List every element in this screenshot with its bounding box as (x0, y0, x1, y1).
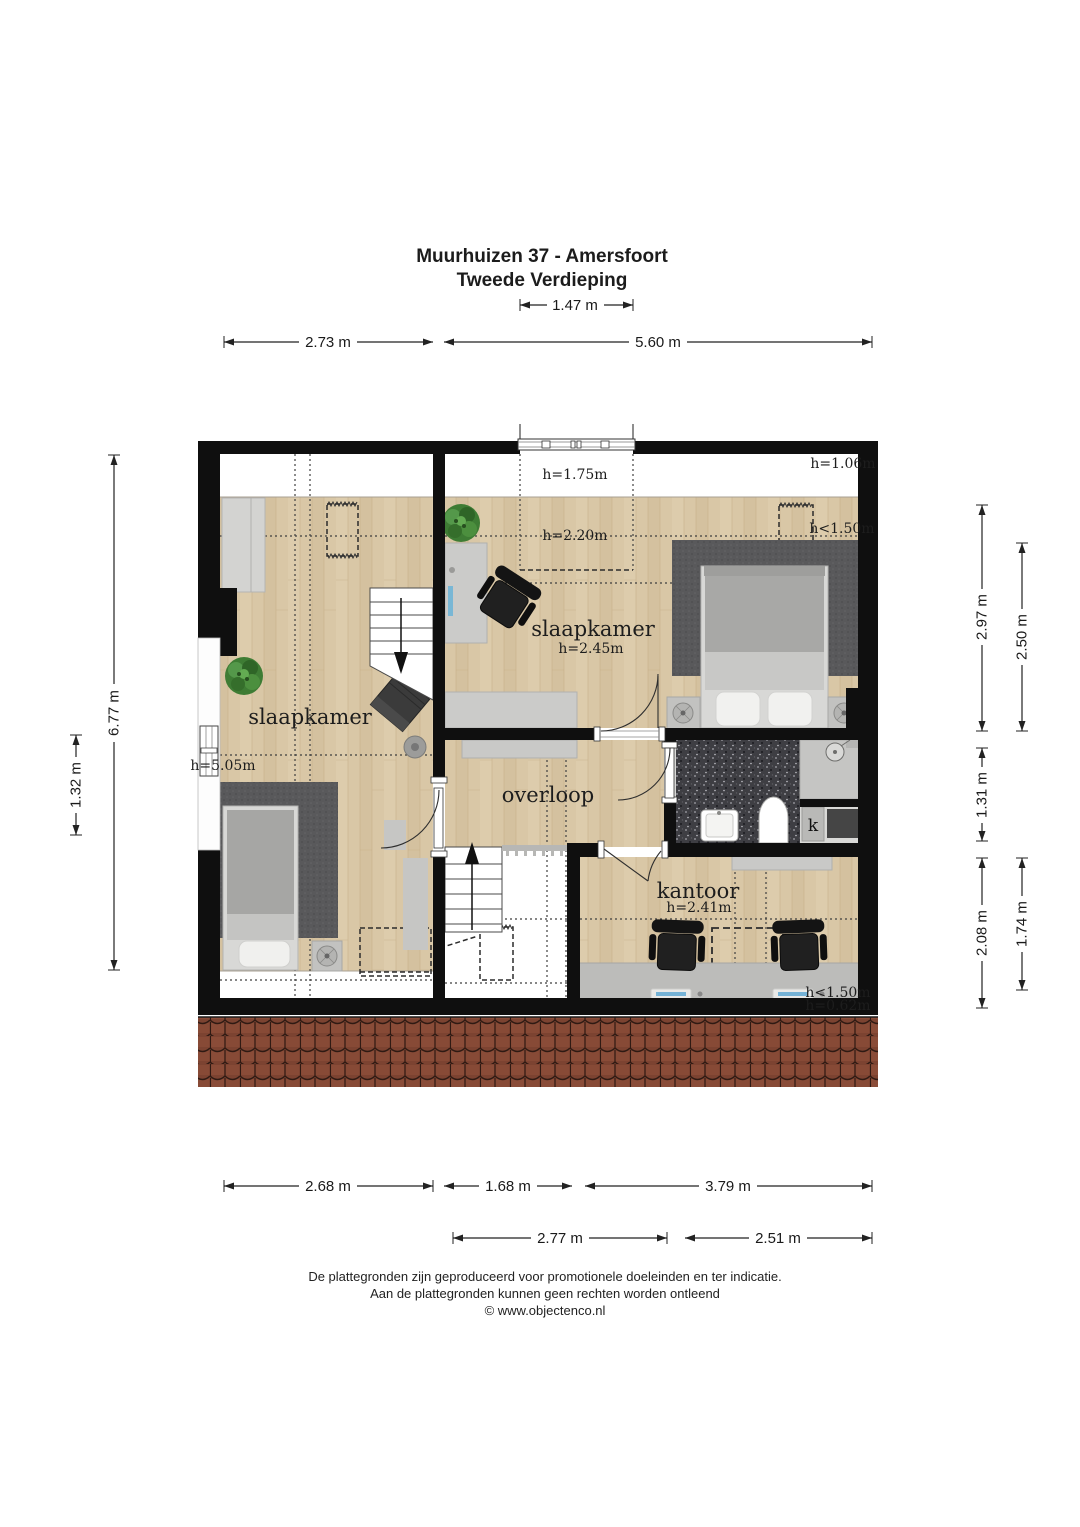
sideboard-icon (462, 740, 577, 758)
dimension-right-bedroom: 2.97 m (974, 505, 991, 731)
dim-label: 2.08 m (974, 910, 991, 956)
room-label-landing: overloop (502, 783, 594, 807)
dim-label: 5.60 m (635, 334, 681, 351)
dimension-right-office-inner: 1.74 m (1014, 858, 1031, 990)
height-label-knee-wall: h=0.62m (805, 998, 870, 1014)
dim-label: 2.50 m (1014, 614, 1031, 660)
dimension-left-total: 6.77 m (106, 455, 123, 970)
height-label-eaves: h=1.06m (810, 456, 875, 472)
dim-label: 1.68 m (485, 1178, 531, 1195)
floor-plan-canvas: Muurhuizen 37 - Amersfoort Tweede Verdie… (0, 0, 1080, 1527)
dimension-right-bathroom: 1.31 m (974, 748, 991, 841)
roof-tiles (198, 1017, 878, 1087)
single-bed-icon (223, 806, 298, 970)
left-window (198, 638, 220, 850)
closet-label: k (808, 816, 819, 836)
height-label: h=2.41m (666, 900, 731, 916)
title-line1: Muurhuizen 37 - Amersfoort (416, 246, 668, 267)
height-label-dormer: h=1.75m (542, 467, 607, 483)
dim-label: 2.77 m (537, 1230, 583, 1247)
double-bed-icon (701, 566, 828, 728)
shelf-icon (384, 820, 406, 850)
title-line2: Tweede Verdieping (457, 270, 628, 291)
page-title: Muurhuizen 37 - Amersfoort Tweede Verdie… (416, 246, 668, 291)
footer-line3: © www.objectenco.nl (485, 1303, 606, 1318)
room-label-bedroom-left: slaapkamer (248, 705, 373, 729)
height-label-low-bedroom: h<1.50m (809, 521, 874, 537)
footer-disclaimer: De plattegronden zijn geproduceerd voor … (308, 1269, 781, 1318)
dimension-top-right: 5.60 m (444, 334, 872, 351)
dimension-bottom-bath: 2.51 m (685, 1230, 872, 1247)
stairs-up-icon (445, 842, 502, 932)
dim-label: 6.77 m (106, 690, 123, 736)
height-label: h=2.45m (558, 641, 623, 657)
stool-icon (404, 736, 426, 758)
dimension-bottom-office: 3.79 m (585, 1178, 872, 1195)
footer-line1: De plattegronden zijn geproduceerd voor … (308, 1269, 781, 1284)
shower-icon (800, 740, 860, 799)
dimension-bottom-left: 2.68 m (224, 1178, 433, 1195)
floor-plan: k (190, 424, 878, 1015)
dim-label: 1.31 m (974, 772, 991, 818)
dimension-right-bedroom-inner: 2.50 m (1014, 543, 1031, 731)
plant-icon (442, 504, 480, 542)
dimension-right-office: 2.08 m (974, 858, 991, 1008)
dim-label: 1.32 m (68, 762, 85, 808)
dim-label: 2.51 m (755, 1230, 801, 1247)
room-label-bedroom-right: slaapkamer (531, 617, 656, 641)
dim-label: 2.73 m (305, 334, 351, 351)
footer-line2: Aan de plattegronden kunnen geen rechten… (370, 1286, 720, 1301)
sink-icon (701, 810, 738, 841)
toilet-icon (759, 797, 788, 843)
cabinet-icon (403, 858, 428, 950)
dresser-icon (445, 692, 577, 728)
dimension-bottom-stairs: 1.68 m (444, 1178, 572, 1195)
dormer-window (518, 424, 635, 450)
dimension-left-window: 1.32 m (68, 735, 85, 835)
nightstand-icon (667, 697, 700, 729)
closet-k: k (802, 807, 824, 841)
dim-label: 2.68 m (305, 1178, 351, 1195)
dimension-top-dormer: 1.47 m (520, 297, 633, 314)
wardrobe-icon (222, 498, 265, 592)
dimension-bottom-landing: 2.77 m (453, 1230, 667, 1247)
nightstand-icon (312, 941, 342, 971)
dim-label: 1.47 m (552, 297, 598, 314)
floor-plan-page: Muurhuizen 37 - Amersfoort Tweede Verdie… (0, 0, 1080, 1527)
dim-label: 3.79 m (705, 1178, 751, 1195)
dim-label: 1.74 m (1014, 901, 1031, 947)
height-label-slope: h=2.20m (542, 528, 607, 544)
dimension-top-left: 2.73 m (224, 334, 433, 351)
height-label: h=5.05m (190, 758, 255, 774)
dim-label: 2.97 m (974, 594, 991, 640)
plant-icon (225, 657, 263, 695)
